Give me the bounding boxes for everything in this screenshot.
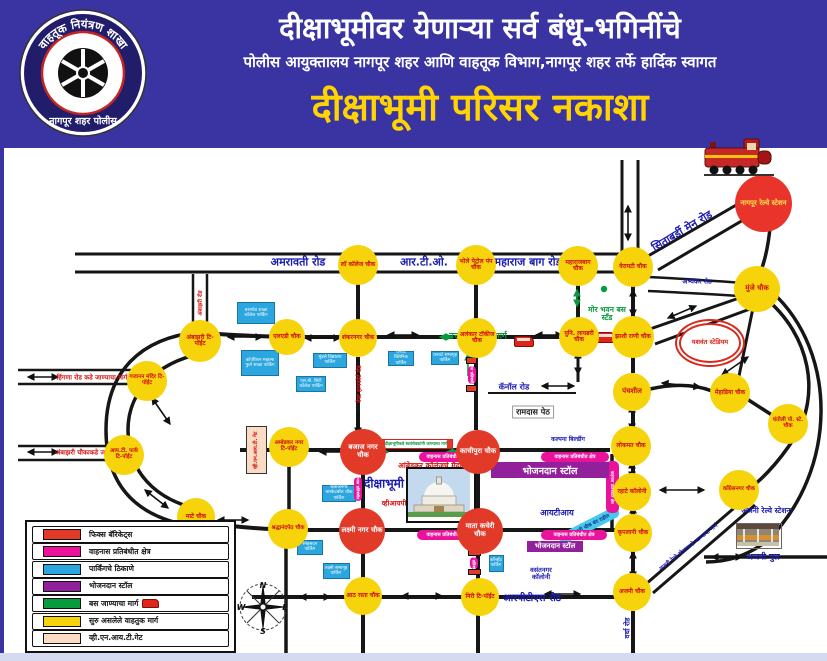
shankarnagar-chowk: शंकरनगर चौक xyxy=(339,319,377,357)
food-stall-1: भोजनदान स्टॉल xyxy=(491,462,609,478)
ajni-station-photo xyxy=(736,523,782,549)
laxmi-nagar-chowk: लक्ष्मी नगर चौक xyxy=(339,508,385,554)
legend-label: वाहनास प्रतिबंधीत क्षेत्र xyxy=(89,547,151,557)
legend-swatch-restricted-area xyxy=(43,546,81,557)
rahate-colony-chowk: रहाटे कॉलोनी xyxy=(613,473,651,511)
munje-chowk: मुंजे चौक xyxy=(734,266,780,312)
ajni-chowk: अजनी चौक xyxy=(613,573,651,611)
legend-swatch-fixed-barricades xyxy=(43,529,81,540)
west-highcourt-road: वेस्ट हायकोर्ट रोड xyxy=(355,365,363,403)
compass-e: E xyxy=(282,603,288,612)
aath-rasta-chowk: आठ रस्ता चौक xyxy=(344,577,382,615)
compass-w: W xyxy=(237,603,247,612)
restricted-6: वाहनास प्रतिबंधीत क्षेत्र xyxy=(470,557,478,569)
legend-row-open-traffic-route: सुरु असलेले वाहतुक मार्ग xyxy=(32,613,229,630)
volunteer-route-strip: दीक्षाभूमीकडे स्वयंसेवकांनी जाण्याचा मार… xyxy=(379,439,453,449)
traffic-police-logo-icon: वाहतूक नियंत्रण शाखा नागपूर शहर पोलीस xyxy=(18,8,148,138)
mehadia-chowk: मेहाडिया चौक xyxy=(710,373,750,413)
canal-road: कॅनॉल रोड xyxy=(499,382,530,393)
bus-stop-dot xyxy=(601,286,607,292)
restricted-7: वाहनास प्रतिबंधीत क्षेत्र xyxy=(468,366,476,384)
legend-label: पार्किंगचे ठिकाणे xyxy=(89,564,134,574)
legend-row-fixed-barricades: फिक्स बॅरिकेट्स xyxy=(32,526,229,543)
kalpana-building: कल्पना बिल्डींग xyxy=(551,435,585,443)
lokmat-chowk: लोकमत चौक xyxy=(611,426,651,466)
parking-sb-city: एस.बी. सिटी कॉलेज पार्किंग xyxy=(296,376,326,392)
ajni-pul: अजनी पुल xyxy=(746,552,779,563)
variety-chowk: वेरायटी चौक xyxy=(613,247,653,287)
food-stall-2: भोजनदान स्टॉल xyxy=(527,541,583,552)
abhyankar-road: अभ्यंकर रोड xyxy=(682,277,711,286)
kripalani-chowk: कृपलानी चौक xyxy=(614,514,652,552)
parking-convent: कॉन्व्हेंट पार्किंग xyxy=(489,555,504,572)
mata-kacheri-chowk: माता कचेरी चौक xyxy=(457,508,503,554)
legend-swatch-food-stall xyxy=(43,581,81,592)
yashwant-stadium-badge: यशवंत स्टेडियम xyxy=(679,323,741,363)
rpts-road: आरपीटीएस रोड xyxy=(503,590,561,604)
parking-dhanwate-hall: धनवटे सभागृह पार्किंग xyxy=(431,351,459,365)
kachipura-chowk: काचीपुरा चौक xyxy=(456,430,500,474)
compass-n: N xyxy=(260,581,267,590)
nagpur-railway-station-badge: नागपूर रेल्वे स्टेशन xyxy=(735,175,792,232)
legend-row-parking-places: पार्किंगचे ठिकाणे xyxy=(32,561,229,578)
neeri-t-point: निरी टि-पॉईंट xyxy=(461,578,499,616)
rto-label: आर.टी.ओ. xyxy=(400,255,448,270)
barricade-1 xyxy=(466,357,477,364)
iti-label: आयटीआय xyxy=(540,508,574,519)
parking-corporation: कॉर्पोरेशन महात्मा फुले शाळा पार्किंग xyxy=(241,350,279,376)
it-park-t-point: आय.टी. पार्क टि-पॉईंट xyxy=(104,435,144,475)
legend-row-food-stall: भोजनदान स्टॉल xyxy=(32,578,229,595)
vasantnagar-colony: वसंतनगर कॉलोनी xyxy=(523,567,559,581)
shraddhanandpeth-chowk: श्रद्धानंदपेठ चौक xyxy=(268,509,308,549)
ambedkar-nagar-t-point: अम्बेडकर नगर टि-पॉईंट xyxy=(269,427,309,467)
vnit-gate-box: व्ही.एन.आय.टी. गेट xyxy=(246,426,267,474)
parking-dhanwate-clinic: धनवटे क्लिनिक पार्किंग xyxy=(388,351,414,366)
legend-label: बस जाण्याचा मार्ग xyxy=(89,599,138,609)
wardha-road: वर्धा रोड xyxy=(624,618,633,639)
header-line1: दीक्षाभूमीवर येणाऱ्या सर्व बंधू-भगिनींचे xyxy=(150,8,810,47)
bottom-border xyxy=(0,653,827,661)
legend-label: फिक्स बॅरिकेट्स xyxy=(89,530,132,540)
restricted-2: वाहनास प्रतिबंधीत क्षेत्र xyxy=(541,452,609,462)
legend: फिक्स बॅरिकेट्सवाहनास प्रतिबंधीत क्षेत्र… xyxy=(25,520,236,653)
legend-label: सुरु असलेले वाहतुक मार्ग xyxy=(89,616,158,626)
legend-swatch-vnit-gate xyxy=(43,633,81,644)
ambazari-road: अंबाझरी रोड xyxy=(196,290,204,315)
ambazari-t-point: अंबाझरी टि-पॉईंट xyxy=(179,320,221,362)
legend-row-bus-route: बस जाण्याचा मार्ग xyxy=(32,595,229,612)
lad-chowk: एलएडी चौक xyxy=(269,319,305,355)
logo-bottom-text: नागपूर शहर पोलीस xyxy=(48,115,117,127)
parking-dharampeth: धरमपेठ शाळा कॉलेज पार्किंग xyxy=(237,302,275,324)
bhole-petrol-pump-chowk: भोले पेट्रोल पंप चौक xyxy=(456,245,496,285)
law-college-chowk: लॉ कॉलेज चौक xyxy=(338,245,378,285)
parking-mundle: मुंडले विद्यालय पार्किंग xyxy=(313,353,347,368)
header-line2: पोलीस आयुक्तालय नागपूर शहर आणि वाहतूक वि… xyxy=(150,52,810,72)
restricted-4: वाहनास प्रतिबंधीत क्षेत्र xyxy=(541,530,607,540)
deekshabhoomi-area-map-poster: वाहतूक नियंत्रण शाखा नागपूर शहर पोलीस दी… xyxy=(0,0,827,661)
barricade-6 xyxy=(468,569,481,575)
panchsheel-chowk: पंचशील xyxy=(613,373,651,411)
barricade-2 xyxy=(466,385,477,392)
bus-icon xyxy=(142,599,159,608)
alankar-talkies-chowk: अलंकार टॉकीज चौक xyxy=(457,318,497,358)
deekshabhoomi-label: दीक्षाभूमी xyxy=(364,475,404,492)
maharajbag-chowk: महाराजबाग चौक xyxy=(558,246,598,286)
legend-row-restricted-area: वाहनास प्रतिबंधीत क्षेत्र xyxy=(32,543,229,560)
uni-library-chowk: युनि. लायब्ररी चौक xyxy=(559,317,599,357)
ramdas-peth: रामदास पेठ xyxy=(512,406,554,419)
congressnagar-chowk: कॉंग्रेसनगर चौक xyxy=(719,470,759,510)
train-icon xyxy=(700,134,776,180)
compass-rose-icon: N E S W xyxy=(235,579,291,635)
jhashi-rani-chowk: झाशी राणी चौक xyxy=(612,316,654,358)
header-banner: वाहतूक नियंत्रण शाखा नागपूर शहर पोलीस दी… xyxy=(0,0,827,148)
maharaj-bag-road: महाराज बाग रोड xyxy=(495,255,562,270)
legend-swatch-parking-places xyxy=(43,564,81,575)
gajanan-mandir-t-point: गजानन मंदिर टि-पॉईंट xyxy=(127,361,167,401)
dhantoli-police-station-chowk: धंतोली पो. स्टे. चौक xyxy=(768,404,808,444)
parking-bajajnagar: बजाजनगर बास्केटबॉल चौक पार्किंग xyxy=(322,485,356,502)
legend-swatch-bus-route xyxy=(43,598,81,609)
bus-icon xyxy=(514,336,534,347)
compass-s: S xyxy=(260,627,266,635)
legend-swatch-open-traffic-route xyxy=(43,616,81,627)
amravati-road: अमरावती रोड xyxy=(271,255,326,270)
legend-label: व्ही.एन.आय.टी.गेट xyxy=(89,633,143,643)
parking-laxmi-hall: लक्ष्मी सभागृह पार्किंग xyxy=(323,563,350,579)
legend-row-vnit-gate: व्ही.एन.आय.टी.गेट xyxy=(32,630,229,647)
legend-label: भोजनदान स्टॉल xyxy=(89,581,132,591)
hingna-road-way: हिंगणा रोड कडे जाण्याचा मार्ग xyxy=(57,373,128,382)
restricted-5: वाहनास प्रतिबंधीत क्षेत्र xyxy=(354,477,362,501)
map-title: दीक्षाभूमी परिसर नकाशा xyxy=(150,80,810,132)
bajaj-nagar-chowk: बजाज नगर चौक xyxy=(340,429,386,475)
